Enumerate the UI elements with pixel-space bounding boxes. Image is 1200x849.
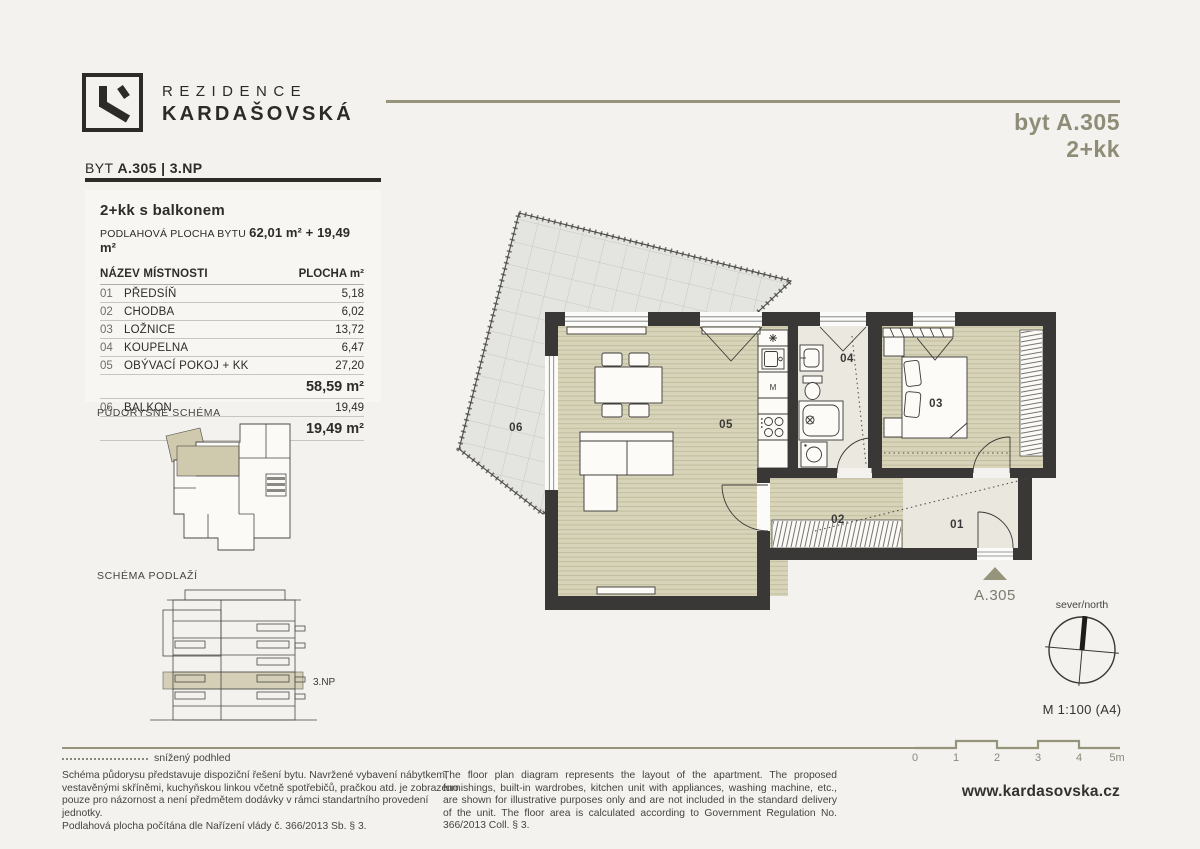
window-bath [820, 312, 866, 326]
site-schematic-drawing [148, 418, 318, 568]
interior-total-value: 58,59 m² [306, 379, 364, 395]
bathtub [799, 401, 843, 440]
balcony-door [545, 356, 558, 490]
level-schematic-drawing: 3.NP [145, 584, 355, 729]
brand-line1: REZIDENCE [162, 83, 354, 100]
room-label-04: 04 [840, 353, 854, 365]
unit-entrance-label: A.305 [974, 587, 1016, 604]
unit-title-rule [85, 178, 381, 182]
unit-badge: byt A.305 2+kk [820, 109, 1120, 163]
floor-entry [903, 478, 1018, 548]
sink-icon [762, 349, 784, 369]
unit-title-number: A.305 | 3.NP [117, 160, 202, 176]
brand-logo-icon [82, 73, 143, 132]
level-tag: 3.NP [313, 677, 336, 688]
table-row: 04 KOUPELNA 6,47 [100, 339, 364, 357]
col-room-name: NÁZEV MÍSTNOSTI [100, 268, 299, 280]
unit-title-prefix: BYT [85, 160, 113, 176]
room-label-01: 01 [950, 519, 964, 531]
table-row: 05 OBÝVACÍ POKOJ + KK 27,20 [100, 357, 364, 375]
north-label: sever/north [1022, 599, 1142, 611]
scale-tick: 2 [994, 752, 1000, 764]
fridge-icon [769, 334, 777, 342]
room-table: 2+kk s balkonem PODLAHOVÁ PLOCHA BYTU 62… [100, 202, 364, 441]
room-label-06: 06 [509, 422, 523, 434]
level-highlight-3np [163, 672, 303, 689]
scale-tick: 5m [1109, 752, 1124, 764]
lowered-ceiling-legend-label: snížený podhled [154, 752, 230, 764]
brand-name: REZIDENCE KARDAŠOVSKÁ [162, 83, 354, 126]
washbasin [800, 345, 823, 371]
footer-divider [62, 747, 915, 749]
header-accent-rule [386, 100, 1120, 103]
floor-plan-drawing: M [450, 190, 1075, 615]
scale-tick: 3 [1035, 752, 1041, 764]
unit-badge-layout: 2+kk [820, 136, 1120, 163]
table-row: 02 CHODBA 6,02 [100, 303, 364, 321]
brand-line2: KARDAŠOVSKÁ [162, 103, 354, 126]
table-row: 01 PŘEDSÍŇ 5,18 [100, 285, 364, 303]
col-room-area: PLOCHA m² [299, 268, 364, 280]
room-label-05: 05 [719, 419, 733, 431]
website-link[interactable]: www.kardasovska.cz [900, 783, 1120, 801]
room-label-02: 02 [831, 514, 845, 526]
lowered-ceiling-legend-line [62, 758, 148, 760]
site-unit-highlight [177, 446, 239, 476]
table-row: 03 LOŽNICE 13,72 [100, 321, 364, 339]
kitchen-m-label: M [770, 383, 777, 392]
drawing-scale: M 1:100 (A4) [1022, 702, 1142, 717]
entrance-opening [977, 548, 1013, 560]
scale-tick: 4 [1076, 752, 1082, 764]
window-living-1 [565, 312, 648, 334]
scale-tick: 0 [912, 752, 918, 764]
kitchen-unit: M [758, 330, 788, 468]
disclaimer-english: The floor plan diagram represents the la… [443, 770, 837, 833]
table-header-row: NÁZEV MÍSTNOSTI PLOCHA m² [100, 265, 364, 285]
level-schematic-label: SCHÉMA PODLAŽÍ [97, 570, 198, 582]
compass-icon [1042, 612, 1122, 692]
living-hall-opening [757, 483, 770, 531]
floor-area-label: PODLAHOVÁ PLOCHA BYTU [100, 228, 246, 240]
scale-bar [910, 736, 1124, 752]
window-living-2 [700, 312, 762, 334]
interior-total-row: 58,59 m² [100, 375, 364, 399]
washing-machine [801, 442, 827, 467]
scale-tick: 1 [953, 752, 959, 764]
unit-title: BYT A.305 | 3.NP [85, 160, 202, 176]
unit-entrance-marker: A.305 [974, 567, 1016, 604]
room-label-03: 03 [929, 398, 943, 410]
floor-plan-sheet: REZIDENCE KARDAŠOVSKÁ byt A.305 2+kk BYT… [0, 0, 1200, 849]
bedroom-wardrobe [1020, 330, 1043, 456]
unit-badge-number: byt A.305 [820, 109, 1120, 136]
living-radiator [597, 587, 655, 594]
disclaimer-czech: Schéma půdorysu představuje dispoziční ř… [62, 770, 466, 834]
floor-area-summary: PODLAHOVÁ PLOCHA BYTU 62,01 m² + 19,49 m… [100, 225, 364, 255]
layout-title: 2+kk s balkonem [100, 202, 364, 219]
